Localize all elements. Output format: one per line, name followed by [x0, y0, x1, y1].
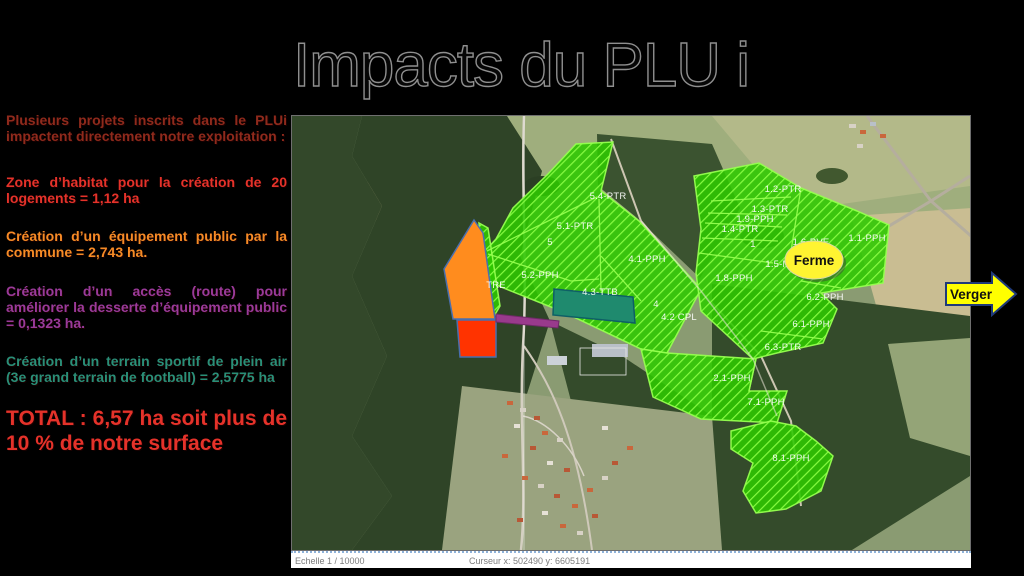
parcel-label: TRE [486, 280, 506, 291]
parcel-label: 6.2-PPH [806, 292, 843, 303]
project-item-equipement: Création d’un équipement public par la c… [6, 228, 287, 260]
parcel-label: 4.2 CPL [661, 312, 697, 323]
map-canvas: 5.4-PTR5.1-PTR55.2-PPHTRE4.1-PPH4.3-TTB4… [292, 116, 970, 550]
intro-paragraph: Plusieurs projets inscrits dans le PLUi … [6, 112, 287, 144]
map-aerial-view: 5.4-PTR5.1-PTR55.2-PPHTRE4.1-PPH4.3-TTB4… [291, 115, 971, 551]
parcel-label: 2.1-PPH [713, 373, 750, 384]
ferme-label: Ferme [794, 253, 835, 268]
parcel-label: 1.1-PPH [848, 233, 885, 244]
project-item-acces: Création d’un accès (route) pour amélior… [6, 283, 287, 331]
parcel-label: 4.3-TTB [582, 287, 618, 298]
statusbar-cursor: Curseur x: 502490 y: 6605191 [469, 556, 590, 566]
parcel-label: 6.1-PPH [792, 319, 829, 330]
parcel-label: 1.8-PPH [715, 273, 752, 284]
parcel-label: 6.3-PTR [765, 342, 802, 353]
project-item-habitat: Zone d’habitat pour la création de 20 lo… [6, 174, 287, 206]
overlay-zone-habitat-red [457, 320, 496, 357]
statusbar-scale: Echelle 1 / 10000 [295, 556, 365, 566]
tree-clump [816, 168, 848, 184]
project-item-terrain: Création d’un terrain sportif de plein a… [6, 353, 287, 385]
parcel-label: 4 [653, 299, 658, 310]
map-statusbar: Echelle 1 / 10000 Curseur x: 502490 y: 6… [291, 551, 971, 568]
parcel-label: 5 [547, 237, 552, 248]
parcel-label: 1 [750, 239, 755, 250]
sidebar: Plusieurs projets inscrits dans le PLUi … [6, 112, 287, 457]
parcel-label: 4.1-PPH [628, 254, 665, 265]
parcel-label: 1.2-PTR [765, 184, 802, 195]
parcel-label: 7.1-PPH [747, 397, 784, 408]
parcel-label: 5.2-PPH [521, 270, 558, 281]
verger-arrow: Verger [944, 271, 1020, 317]
verger-label: Verger [950, 287, 993, 302]
parcel-label: 1.4-PTR [722, 224, 759, 235]
total-text: TOTAL : 6,57 ha soit plus de 10 % de not… [6, 407, 287, 457]
parcel-label: 8.1-PPH [772, 453, 809, 464]
parcel-label: 5.1-PTR [557, 221, 594, 232]
parcel-label: 5.4-PTR [590, 191, 627, 202]
page-title: Impacts du PLU i [293, 30, 813, 101]
